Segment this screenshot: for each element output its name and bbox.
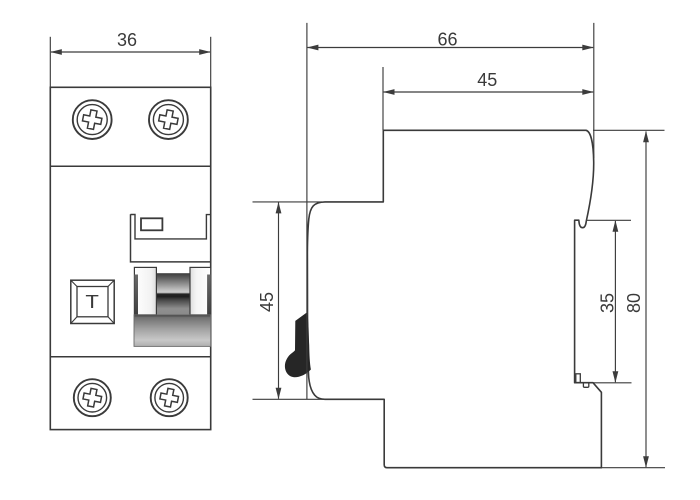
- svg-text:T: T: [85, 292, 99, 312]
- svg-text:45: 45: [477, 70, 497, 90]
- svg-text:35: 35: [598, 293, 618, 313]
- svg-text:36: 36: [117, 30, 137, 50]
- svg-text:80: 80: [624, 293, 644, 313]
- svg-text:66: 66: [437, 29, 457, 49]
- svg-text:45: 45: [257, 292, 277, 312]
